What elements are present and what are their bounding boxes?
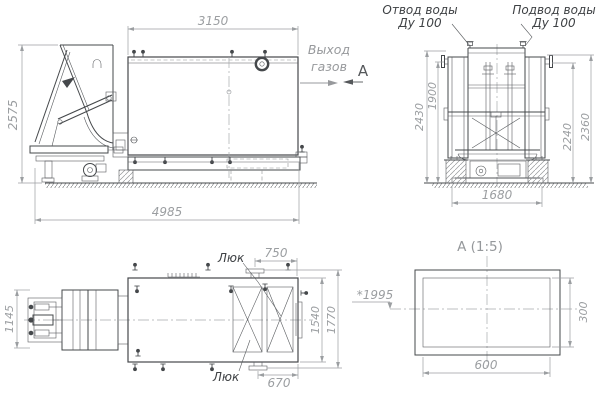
comb-detail: [168, 273, 196, 277]
eyebolt: [131, 50, 136, 57]
tip-arrow: [62, 77, 75, 88]
gas-flow-arrow: [328, 80, 338, 86]
eyebolt: [140, 50, 145, 57]
water-supply-text-2: Ду 100: [531, 16, 576, 30]
gas-outlet-text-1: Выход: [308, 42, 350, 57]
side-view: 3150 2575 4985 Выход газов А: [6, 14, 369, 224]
gas-outlet-text-2: газов: [311, 59, 347, 74]
hopper-mark: [93, 60, 101, 69]
hydraulic-cylinder: [52, 92, 116, 146]
section-dimensions: 600 300: [423, 278, 590, 377]
section-view: А (1:5) 600 300: [390, 239, 590, 377]
dim-1770: 1770: [325, 306, 338, 334]
water-outlet-text-2: Ду 100: [397, 16, 442, 30]
water-outlet-label: Отвод воды Ду 100: [382, 3, 470, 46]
hatch-box-1: [233, 287, 262, 352]
bottom-pipe-stub: [249, 362, 267, 370]
reference-dim-1995: *1995: [352, 288, 393, 309]
eyebolt: [229, 50, 234, 57]
ground-line: [45, 183, 317, 188]
lifting-lug: [520, 42, 527, 49]
end-view: 2430 1900 2240 2360 1680 Отвод воды Ду 1…: [382, 3, 595, 207]
hatch-label-top: Люк: [217, 251, 245, 265]
cross-braces: [472, 112, 520, 150]
dim-600: 600: [475, 358, 498, 372]
dim-2575: 2575: [6, 100, 20, 131]
inner-rods: [482, 62, 516, 150]
dim-4985: 4985: [152, 205, 183, 219]
hatch-label-bottom: Люк: [212, 370, 240, 384]
dim-2240: 2240: [561, 123, 574, 151]
lifting-lug: [467, 42, 474, 49]
duct-inner: [423, 278, 550, 347]
gas-flange: [256, 58, 268, 70]
dim-1680: 1680: [482, 188, 513, 202]
section-title: А (1:5): [457, 239, 503, 255]
loader-hopper: [30, 45, 128, 182]
technical-drawing: 3150 2575 4985 Выход газов А: [0, 0, 600, 400]
water-supply-label: Подвод воды Ду 100: [512, 3, 595, 46]
dim-300: 300: [577, 302, 590, 323]
section-marker-letter: А: [358, 62, 369, 80]
water-outlet-text-1: Отвод воды: [382, 3, 457, 17]
dim-2360: 2360: [579, 113, 592, 141]
section-view-arrow: [343, 79, 353, 84]
hatch-box-2: [267, 287, 293, 352]
dim-1900: 1900: [426, 82, 439, 110]
dim-750: 750: [265, 246, 288, 260]
side-view-dimensions: 3150 2575 4985: [6, 14, 299, 224]
plan-body: [128, 263, 308, 371]
dim-1995: *1995: [357, 288, 394, 302]
dim-1540: 1540: [309, 306, 322, 334]
duct-outer: [415, 270, 560, 355]
plan-view: 1145 750 670 1540 1770 *1995: [3, 246, 393, 390]
dim-2430: 2430: [413, 103, 426, 131]
drawing-canvas: 3150 2575 4985 Выход газов А: [0, 0, 600, 400]
gas-outlet-label: Выход газов: [300, 42, 350, 86]
water-supply-text-1: Подвод воды: [512, 3, 595, 17]
dim-670: 670: [268, 376, 291, 390]
dim-1145: 1145: [3, 305, 16, 333]
dim-3150: 3150: [198, 14, 229, 28]
eyebolt: [262, 50, 267, 57]
